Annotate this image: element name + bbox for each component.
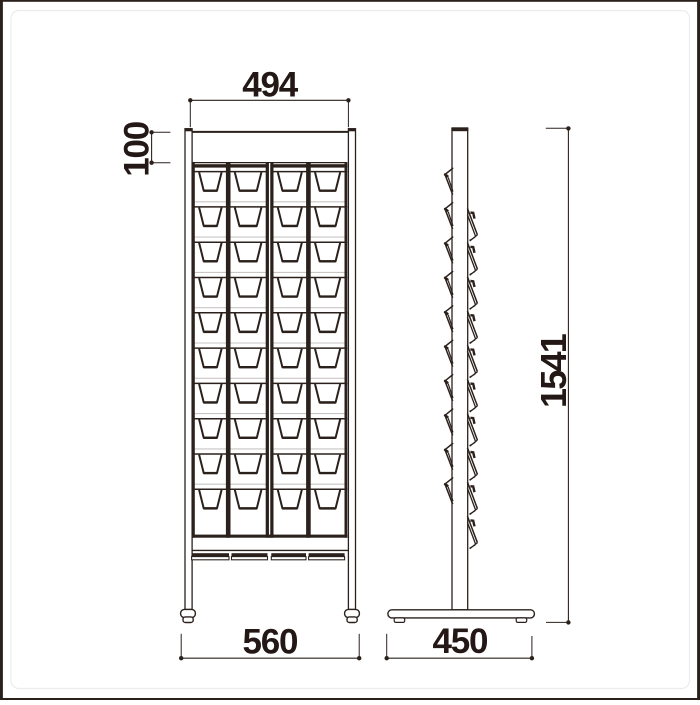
svg-text:100: 100 [118, 121, 157, 177]
svg-text:450: 450 [433, 622, 489, 661]
svg-text:494: 494 [242, 66, 299, 105]
svg-text:1541: 1541 [533, 333, 574, 408]
svg-text:560: 560 [243, 622, 299, 661]
